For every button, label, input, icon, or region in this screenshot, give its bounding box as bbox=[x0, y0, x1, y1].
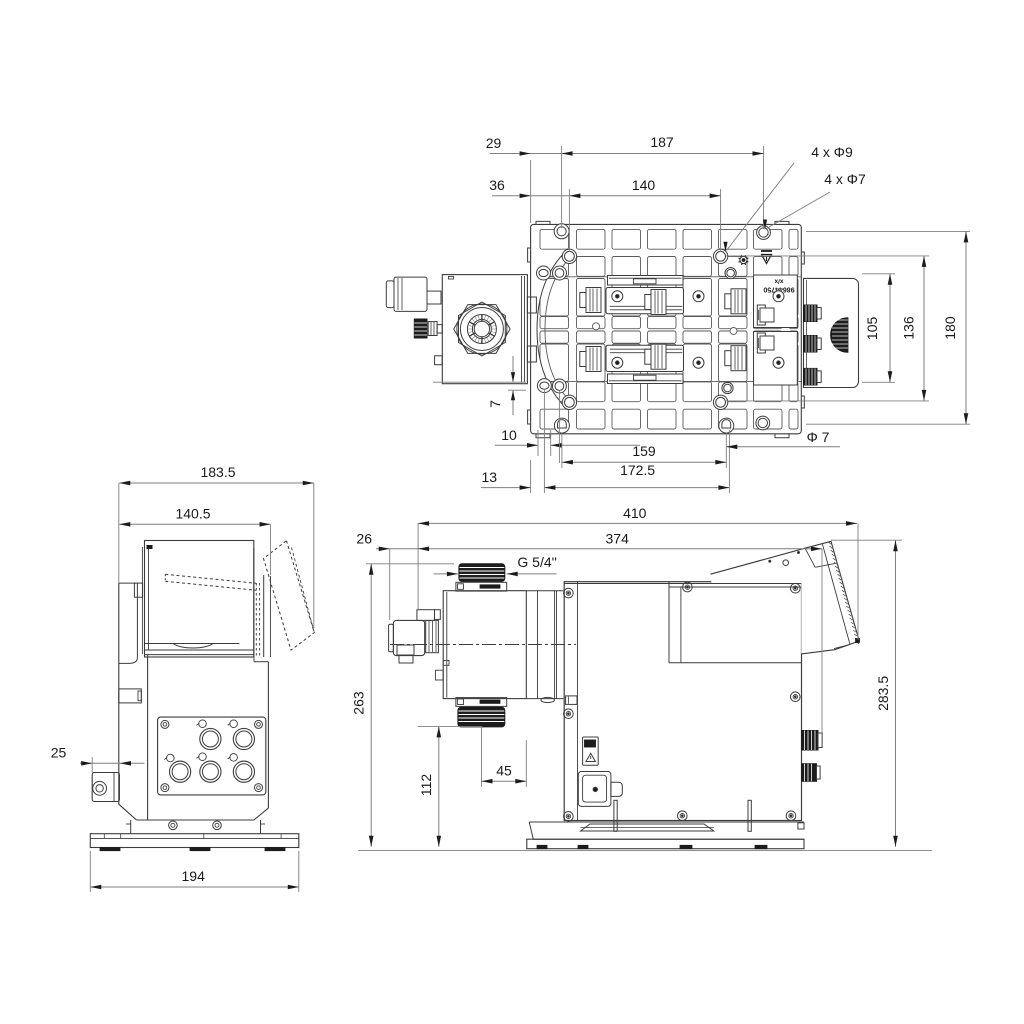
svg-text:13: 13 bbox=[482, 469, 498, 485]
svg-text:10: 10 bbox=[501, 427, 517, 443]
svg-text:140.5: 140.5 bbox=[175, 506, 210, 522]
svg-text:26: 26 bbox=[356, 531, 372, 547]
svg-text:159: 159 bbox=[632, 443, 656, 459]
svg-text:180: 180 bbox=[942, 316, 958, 340]
svg-text:374: 374 bbox=[606, 531, 630, 547]
svg-text:45: 45 bbox=[496, 763, 512, 779]
svg-text:112: 112 bbox=[418, 774, 434, 797]
svg-text:194: 194 bbox=[182, 868, 206, 884]
svg-text:4 x Φ7: 4 x Φ7 bbox=[824, 171, 866, 187]
svg-text:25: 25 bbox=[51, 745, 67, 761]
svg-text:x/x: x/x bbox=[774, 278, 783, 285]
svg-text:G 5/4'': G 5/4'' bbox=[517, 554, 557, 570]
svg-text:136: 136 bbox=[901, 316, 917, 340]
svg-text:263: 263 bbox=[351, 691, 367, 715]
svg-text:140: 140 bbox=[632, 177, 656, 193]
svg-text:187: 187 bbox=[650, 134, 674, 150]
svg-text:7: 7 bbox=[487, 400, 503, 408]
svg-text:105: 105 bbox=[864, 317, 880, 341]
svg-text:183.5: 183.5 bbox=[200, 464, 235, 480]
svg-text:Φ 7: Φ 7 bbox=[807, 429, 830, 445]
svg-text:4 x Φ9: 4 x Φ9 bbox=[811, 144, 853, 160]
svg-text:283.5: 283.5 bbox=[875, 676, 891, 711]
svg-text:410: 410 bbox=[623, 505, 647, 521]
svg-text:172.5: 172.5 bbox=[620, 462, 655, 478]
svg-text:29: 29 bbox=[486, 135, 502, 151]
svg-text:36: 36 bbox=[489, 177, 505, 193]
